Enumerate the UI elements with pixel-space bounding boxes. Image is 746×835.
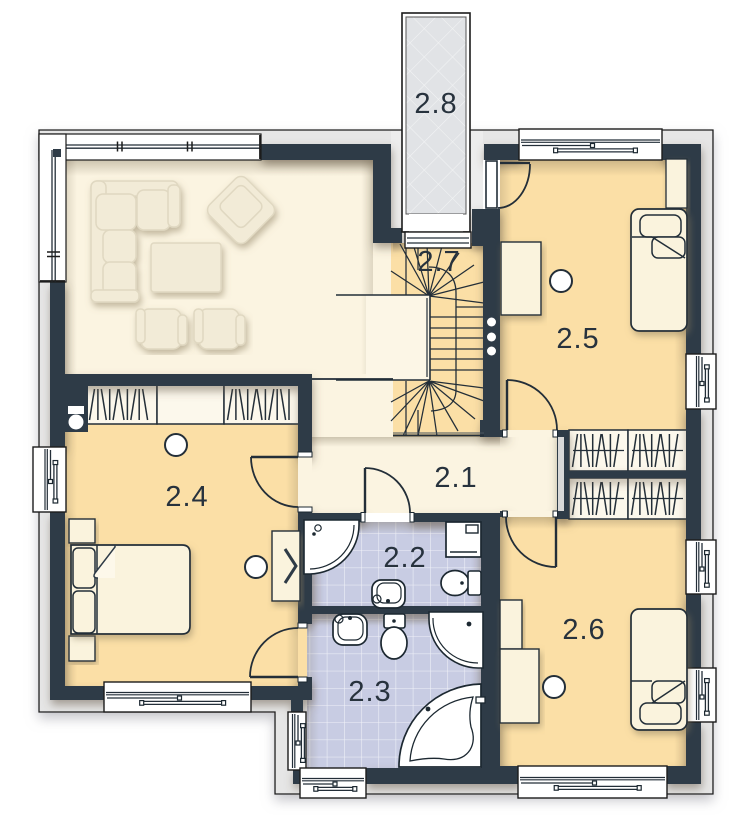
svg-text:2.4: 2.4 xyxy=(165,481,208,513)
svg-text:2.5: 2.5 xyxy=(556,323,599,355)
svg-text:2.8: 2.8 xyxy=(414,88,457,120)
svg-text:2.7: 2.7 xyxy=(417,246,460,278)
svg-text:2.1: 2.1 xyxy=(434,462,477,494)
svg-text:2.3: 2.3 xyxy=(348,676,391,708)
svg-text:2.2: 2.2 xyxy=(383,542,426,574)
svg-text:2.6: 2.6 xyxy=(562,614,605,646)
